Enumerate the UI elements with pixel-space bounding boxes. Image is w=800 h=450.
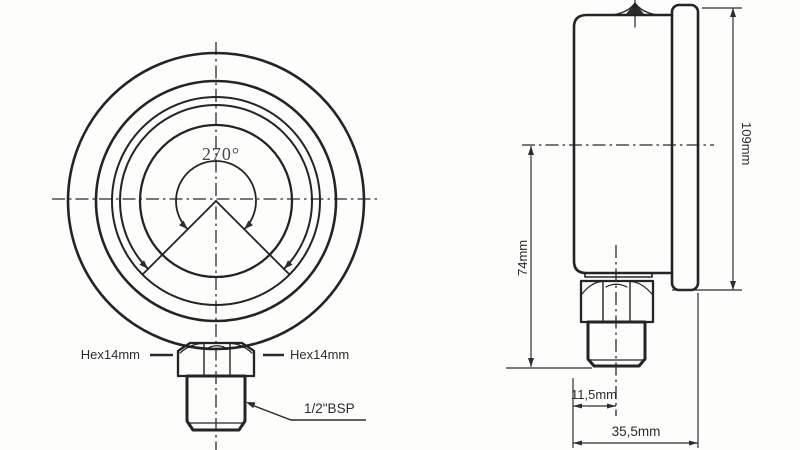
hex-fitting-side — [581, 281, 653, 322]
dim-109-arrow-bottom — [730, 281, 736, 290]
sweep-arc-arrow-left — [179, 221, 188, 230]
dim-355-arrow-left — [573, 441, 582, 446]
side-view: 109mm 74mm 11,5mm 35,5mm — [506, 0, 754, 448]
front-view: 270° Hex14mm Hex14mm 1/2"BSP — [52, 42, 380, 450]
dim-74-arrow-top — [528, 146, 534, 155]
dim-74-label: 74mm — [515, 240, 530, 276]
hex-left-label: Hex14mm — [81, 347, 140, 362]
dim-109-label: 109mm — [739, 122, 754, 165]
hex-chamfer-arcs-side — [582, 282, 652, 295]
thread-leader-arrow — [246, 402, 256, 408]
dim-115-arrow-left — [573, 404, 582, 409]
dim-115-label: 11,5mm — [571, 387, 617, 402]
thread-label: 1/2"BSP — [304, 401, 355, 416]
sweep-arc-arrow-right — [244, 221, 253, 230]
gauge-dimensional-drawing: 270° Hex14mm Hex14mm 1/2"BSP — [0, 0, 800, 450]
dim-115-arrow-right — [607, 404, 616, 409]
sweep-angle-label: 270° — [202, 144, 240, 164]
dim-355-label: 35,5mm — [612, 424, 661, 439]
dim-109-lines — [672, 8, 742, 290]
hex-right-label: Hex14mm — [290, 347, 349, 362]
dim-355-arrow-right — [689, 441, 698, 446]
case-body-side — [574, 15, 672, 273]
dim-74-arrow-bottom — [528, 358, 534, 367]
drawing-canvas: 270° Hex14mm Hex14mm 1/2"BSP — [0, 0, 800, 450]
dim-109-arrow-top — [730, 8, 736, 17]
bezel-side — [672, 5, 698, 290]
